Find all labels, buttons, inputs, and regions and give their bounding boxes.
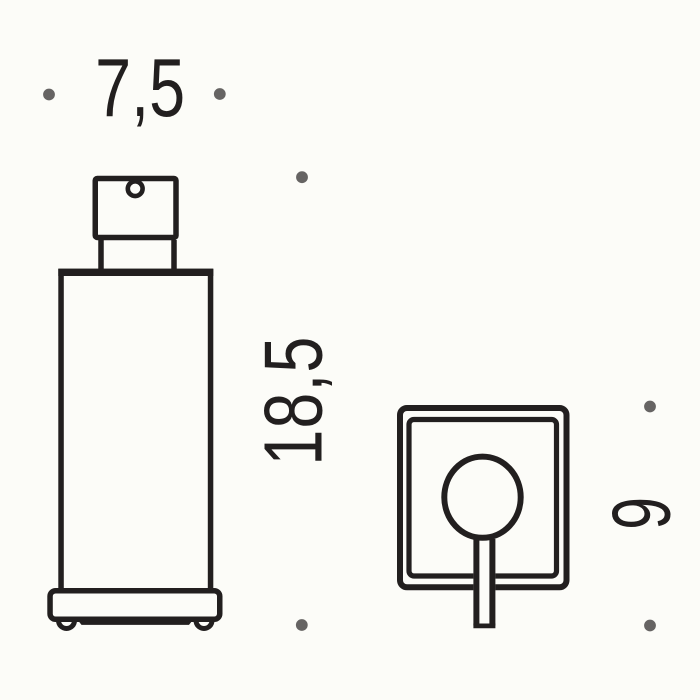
svg-text:18,5: 18,5	[247, 336, 340, 466]
svg-text:7,5: 7,5	[95, 41, 185, 134]
svg-text:9: 9	[596, 497, 688, 530]
